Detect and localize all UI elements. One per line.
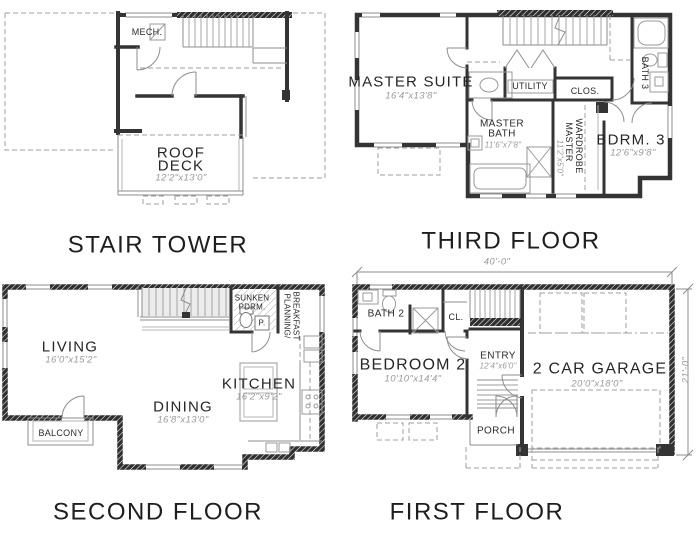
label-mech: MECH. (132, 27, 163, 37)
label-porch: PORCH (477, 426, 515, 437)
floor-plan-sheet: MECH. ROOF DECK 12'2"x13'0" STAIR TOWER (0, 0, 700, 533)
label-depth-dim: 21'-0" (681, 356, 692, 384)
third-floor-stairs (467, 15, 632, 62)
label-balcony: BALCONY (38, 428, 83, 438)
label-planning-1: PLANNING/ (283, 294, 292, 339)
title-stair-tower: STAIR TOWER (68, 232, 249, 259)
label-wardrobe-2: WARDROBE (574, 118, 584, 173)
label-roof-deck-dims: 12'2"x13'0" (155, 173, 206, 184)
label-living-dims: 16'0"x15'2" (45, 355, 96, 366)
breakfast-builtins (300, 336, 322, 362)
mech-door-arc (137, 47, 160, 70)
label-garage-dims: 20'0"x18'0" (570, 379, 622, 390)
third-floor-plan: MASTER SUITE 16'4"x13'8" UTILITY CLOS. B… (348, 12, 673, 255)
label-wardrobe-dims: 11'2"x5'0" (556, 140, 565, 177)
label-closet3: CLOS. (571, 86, 600, 96)
bath2-door-arc (360, 331, 380, 351)
label-bath3: BATH 3 (640, 57, 650, 90)
bath3-tub-icon (634, 18, 668, 48)
label-bath2: BATH 2 (368, 309, 405, 320)
label-powder: P. (259, 319, 266, 328)
bath3-door-arc (632, 103, 652, 123)
label-dining-dims: 16'8"x13'0" (157, 415, 208, 426)
deck-below-outline (378, 148, 440, 175)
label-dining: DINING (153, 399, 213, 416)
title-second-floor: SECOND FLOOR (53, 499, 263, 526)
label-kitchen: KITCHEN (222, 376, 296, 393)
label-bedroom2: BEDROOM 2 (360, 357, 467, 374)
patio-dashed-outlines (377, 423, 437, 440)
label-utility: UTILITY (512, 81, 548, 91)
label-master-suite: MASTER SUITE (348, 74, 473, 91)
hall-door-arc (172, 72, 196, 96)
first-floor-plan: 40'-0" 21'-0" (351, 257, 693, 526)
label-wardrobe-1: MASTER (564, 122, 574, 162)
suite-door-arc (447, 48, 467, 68)
stair-tower-plan: MECH. ROOF DECK 12'2"x13'0" STAIR TOWER (5, 11, 325, 259)
master-tub-icon (470, 164, 530, 193)
label-sunken-1: SUNKEN (235, 294, 270, 303)
closet1-door-arc (445, 331, 465, 351)
label-garage: 2 CAR GARAGE (533, 361, 667, 378)
title-first-floor: FIRST FLOOR (390, 499, 565, 526)
label-closet1: CL. (449, 312, 464, 322)
label-bedroom3: BDRM. 3 (596, 132, 665, 149)
depth-dimension: 21'-0" (676, 284, 693, 460)
bath2-shower-icon (413, 308, 438, 333)
stair-tower-stairs (183, 15, 287, 63)
label-kitchen-dims: 16'2"x9'2" (236, 392, 282, 403)
label-bedroom3-dims: 12'6"x9'8" (610, 148, 656, 159)
label-entry: ENTRY (480, 351, 516, 362)
second-floor-stairs (138, 287, 231, 332)
label-planning-2: BREAKFAST (292, 292, 301, 341)
range-icon (302, 390, 322, 414)
bath2-sink-icon (358, 290, 378, 304)
label-master-bath-dims: 11'6"x7'8" (485, 141, 522, 150)
label-bedroom2-dims: 10'10"x14'4" (385, 374, 442, 385)
label-width-dim: 40'-0" (484, 257, 511, 268)
floor-plan-drawing: MECH. ROOF DECK 12'2"x13'0" STAIR TOWER (0, 0, 700, 533)
bath-door-arc (472, 100, 492, 120)
front-door-arcs (496, 395, 517, 417)
second-floor-plan: LIVING 16'0"x15'2" DINING 16'8"x13'0" KI… (1, 283, 326, 526)
title-third-floor: THIRD FLOOR (421, 228, 600, 255)
width-dimension: 40'-0" (352, 257, 677, 285)
bath3-sink-icon (650, 72, 668, 92)
label-living: LIVING (42, 339, 98, 356)
label-sunken-2: PDRM. (239, 303, 266, 312)
entry-stairs (470, 289, 520, 408)
label-master-bath-2: BATH (488, 129, 516, 140)
label-master-suite-dims: 16'4"x13'8" (385, 91, 436, 102)
third-floor-walls (353, 12, 673, 199)
shower-icon (527, 147, 551, 177)
sink-icon (266, 443, 290, 452)
label-entry-dims: 12'4"x6'0" (480, 362, 518, 371)
